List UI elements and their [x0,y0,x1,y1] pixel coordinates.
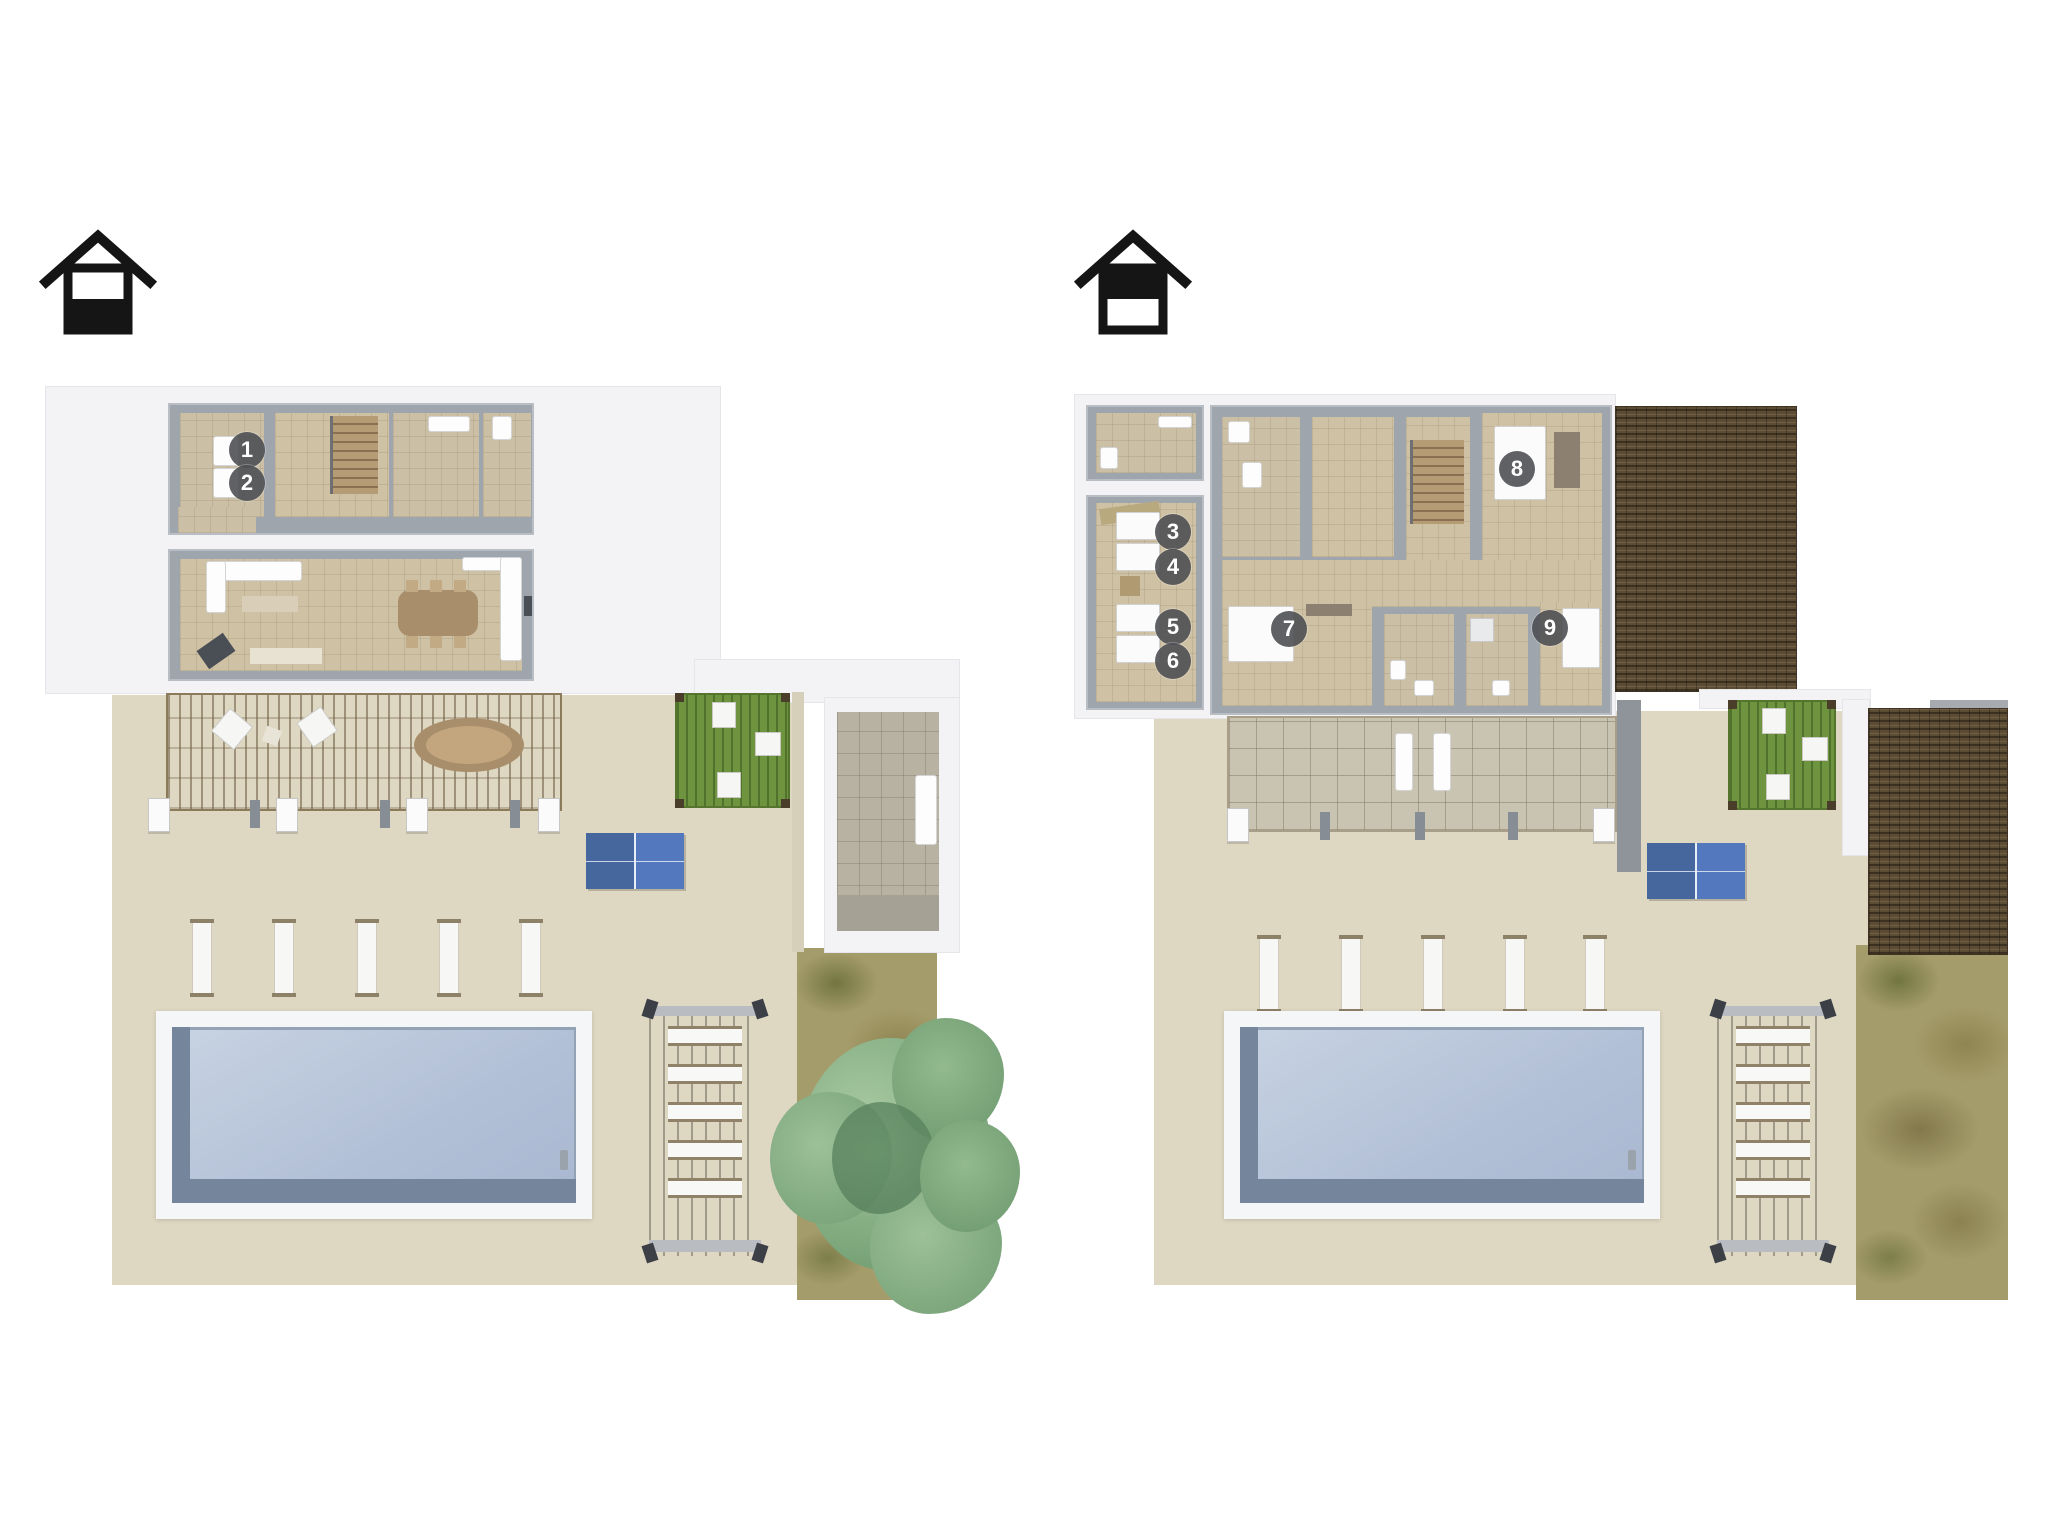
shaded-lounger [1736,1140,1810,1160]
sun-lounger [1259,938,1279,1010]
side-slab [1843,700,1869,855]
main-room-block-walls [1210,405,1612,715]
pergola-beam [1717,1006,1829,1016]
terrace-post-small [1415,812,1425,840]
single-bed [1116,604,1160,632]
terrace-side-wall [1617,700,1641,872]
sink-shelf [1158,416,1192,428]
terrace-post-small [1508,812,1518,840]
single-bed [1116,543,1160,571]
pergola-post [1827,801,1836,810]
toilet [1492,680,1510,696]
pergola-post [1827,700,1836,709]
sun-lounger [1585,938,1605,1010]
icon-floor-fill [1107,272,1159,299]
table-tennis-center-line [1647,871,1745,872]
terrace-post-small [1320,812,1330,840]
room-marker: 5 [1155,609,1191,645]
sun-lounger [1423,938,1443,1010]
bathroom-walls [1086,405,1204,481]
sun-lounger [1341,938,1361,1010]
skylight [1395,733,1413,791]
pool-ladder [1628,1150,1636,1170]
nightstand [1120,576,1140,596]
pergola-lounger [1762,708,1786,734]
house-upper-floor-icon [1073,228,1193,340]
staircase [1410,440,1464,524]
lawn-strip [1856,945,2008,1300]
shaded-lounger [1736,1178,1810,1198]
pergola-lounger [1766,774,1790,800]
green-pergola [1728,700,1836,810]
skylight [1433,733,1451,791]
room-marker: 4 [1155,549,1191,585]
room-marker: 7 [1271,611,1307,647]
terrace-post [1593,808,1615,842]
tiled-roof [1615,406,1797,692]
room-marker: 8 [1499,451,1535,487]
terrace-post [1227,808,1249,842]
room-marker: 6 [1155,643,1191,679]
shaded-lounger [1736,1064,1810,1084]
shaded-lounger [1736,1026,1810,1046]
hall-floor [1312,417,1394,557]
single-bed [1116,512,1160,540]
room-marker: 9 [1532,610,1568,646]
wardrobe [1554,432,1580,488]
pergola-post [1728,801,1737,810]
toilet [1414,680,1434,696]
pergola-post [1728,700,1737,709]
washing-machine [1228,421,1250,443]
floor-plans-sheet: 12 [0,0,2048,1536]
swimming-pool [1224,1011,1660,1219]
shaded-lounger [1736,1102,1810,1122]
lounger-pergola [1717,1006,1829,1256]
room-marker: 3 [1155,514,1191,550]
pergola-beam [1717,1240,1829,1252]
table-tennis-table [1647,843,1745,899]
double-bed [1562,608,1600,668]
wardrobe [1306,604,1352,616]
pergola-lounger [1802,737,1828,761]
pool-water [1240,1027,1644,1203]
corridor-floor [1222,560,1602,607]
single-bed [1116,635,1160,663]
sun-lounger [1505,938,1525,1010]
shower [1470,618,1494,642]
sink [1390,660,1406,680]
toilet [1242,462,1262,488]
tiled-roof [1868,708,2008,955]
upper-floor-plan: 3456789 [0,0,2048,1536]
toilet [1100,447,1118,469]
